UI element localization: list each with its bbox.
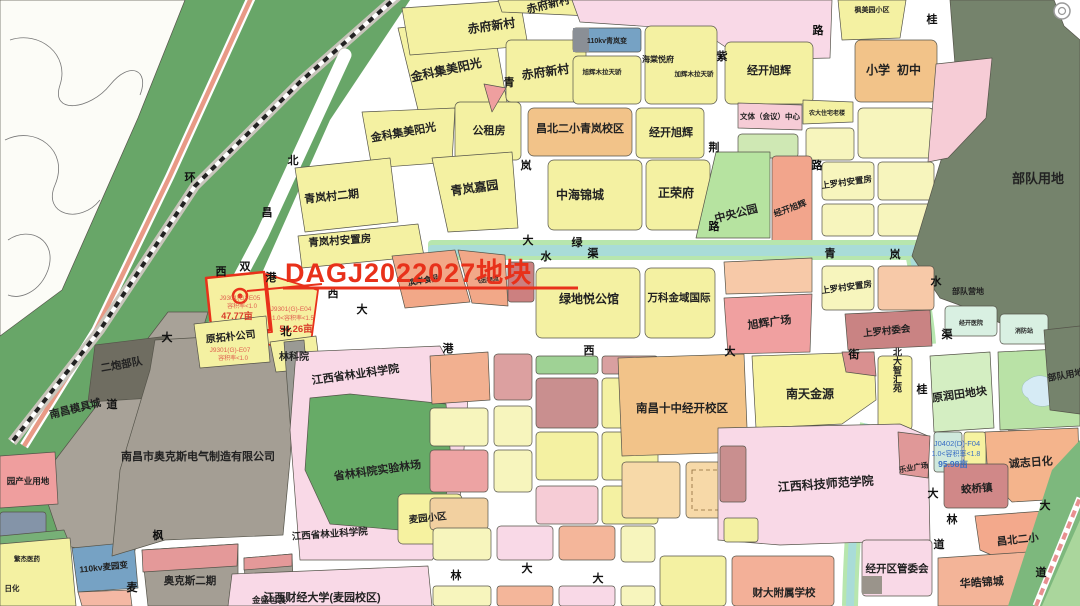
road-char: 道 xyxy=(107,397,118,411)
road-char: 道 xyxy=(934,537,945,551)
road-char: 路 xyxy=(812,158,824,172)
waterway-char: 水 xyxy=(541,249,553,263)
parcel-small xyxy=(536,378,598,428)
road-char: 昌 xyxy=(262,206,273,219)
road-char: 路 xyxy=(709,219,721,233)
parcel-small xyxy=(430,352,490,404)
waterway-char: 渠 xyxy=(942,327,954,341)
area-label: 园产业用地 xyxy=(7,476,50,486)
road-char: 大 xyxy=(1040,498,1051,512)
zoning-map: 赤府新村 赤府新村 金科集美阳光 金科集美阳光 公租房 赤府新村 110kv青岚… xyxy=(0,0,1080,606)
substation-label: 110kv青岚变 xyxy=(587,36,627,45)
road-char: 桂 xyxy=(926,12,938,26)
road-char: 大 xyxy=(522,561,533,575)
area-label: 经开区管委会 xyxy=(866,562,929,575)
roundabout xyxy=(1054,3,1070,19)
parcel-fengmeiyuan xyxy=(838,0,906,40)
parcel-shangluo-2 xyxy=(878,162,934,200)
parcel-small xyxy=(536,356,598,374)
road-char: 大 xyxy=(593,571,604,585)
area-label: 经开旭辉 xyxy=(649,125,693,139)
road-char: 街 xyxy=(848,347,860,361)
parcel-small xyxy=(621,526,655,562)
parcel-yellow xyxy=(806,128,854,160)
area-label: 旭辉木拉天骄 xyxy=(582,67,623,76)
road-char: 荆 xyxy=(709,140,720,154)
parcel-rose-strip xyxy=(720,446,746,502)
area-label: 部队用地 xyxy=(1012,171,1064,186)
parcel-salmon-sw xyxy=(78,590,132,606)
area-label: 繁杰医药 xyxy=(14,554,41,563)
parcel-small xyxy=(622,462,680,518)
parcel-area-value: 95.98亩 xyxy=(938,459,968,469)
road-char: 枫 xyxy=(153,528,164,542)
parcel-small xyxy=(559,586,615,606)
road-char: 岚 xyxy=(521,158,532,172)
parcel-small xyxy=(430,450,488,492)
road-char: 大 xyxy=(523,233,534,247)
parcel-small xyxy=(433,586,491,606)
road-char: 大 xyxy=(928,486,939,500)
road-char: 林 xyxy=(451,568,462,582)
area-label: 蛟桥镇 xyxy=(961,481,994,496)
road-char: 桂 xyxy=(916,382,928,396)
road-char: 路 xyxy=(813,23,825,37)
area-label: 林科院 xyxy=(279,350,309,363)
road-char: 北 xyxy=(281,324,292,338)
area-label: 海棠悦府 xyxy=(642,54,674,64)
parcel-small xyxy=(430,408,488,446)
parcel-small xyxy=(559,526,615,560)
road-char: 环 xyxy=(185,171,196,184)
area-label: 小学 xyxy=(866,62,890,77)
road-char: 大 xyxy=(357,302,368,316)
parcel-small xyxy=(536,432,598,480)
parcel-small xyxy=(433,528,491,560)
parcel-code: J9301(G)-E07 xyxy=(210,347,251,354)
parcel-code: 1.0<容积率<1.8 xyxy=(932,449,981,458)
parcel-small xyxy=(724,518,758,542)
parcel-area-value: 47.77亩 xyxy=(221,310,253,321)
area-label: 消防站 xyxy=(1015,327,1033,335)
road-char: 道 xyxy=(1036,565,1047,579)
area-label: 部队营地 xyxy=(952,286,984,296)
parcel-small xyxy=(497,586,553,606)
map-canvas: 赤府新村 赤府新村 金科集美阳光 金科集美阳光 公租房 赤府新村 110kv青岚… xyxy=(0,0,1080,606)
area-label: 奥克斯二期 xyxy=(164,574,217,587)
area-label: 文体（会议）中心 xyxy=(740,111,800,121)
parcel-code: 1.0<容积率<1.5 xyxy=(272,314,314,322)
road-char: 紫 xyxy=(717,49,728,63)
gray-notch xyxy=(862,576,882,594)
parcel-small xyxy=(494,406,532,446)
area-label: 南天金源 xyxy=(786,386,834,401)
area-label: 南昌十中经开校区 xyxy=(636,401,728,415)
parcel-small xyxy=(621,586,655,606)
parcel-small xyxy=(494,450,532,492)
road-char: 大 xyxy=(725,344,736,358)
road-char: 西 xyxy=(584,344,595,357)
parcel-sw-yellow xyxy=(0,538,76,606)
waterway-char: 青 xyxy=(825,246,836,260)
parcel-yellow xyxy=(858,108,934,158)
parcel-code: J9301(G)-E05 xyxy=(220,295,261,302)
area-label: 公租房 xyxy=(473,123,506,137)
waterway-char: 水 xyxy=(931,274,943,288)
area-label: 经开旭辉 xyxy=(747,63,791,77)
area-label: 日化 xyxy=(5,583,20,593)
parcel-code: J0402(D)-F04 xyxy=(934,439,980,448)
parcel-small xyxy=(494,354,532,400)
area-label: 加辉木拉天骄 xyxy=(674,69,715,78)
road-char: 北 xyxy=(288,153,299,167)
area-label: 金盛包装 xyxy=(251,595,287,605)
parcel-xuhui-1 xyxy=(573,56,641,104)
area-label: 初中 xyxy=(897,62,921,77)
parcel-small xyxy=(660,556,726,606)
parcel-peach xyxy=(724,258,812,294)
parcel-haitang xyxy=(645,26,717,104)
road-char: 西 xyxy=(216,265,227,278)
parcel-small xyxy=(536,486,598,524)
area-label: 经开医院 xyxy=(959,319,983,327)
road-char: 麦 xyxy=(127,580,139,594)
waterway-char: 渠 xyxy=(588,246,600,260)
parcel-code: J9301(G)-E04 xyxy=(271,306,312,313)
area-label: 农大住宅老楼 xyxy=(808,109,845,117)
parcel-code: 容积率<1.0 xyxy=(218,354,249,362)
parcel-peach-2 xyxy=(878,266,934,310)
road-char: 林 xyxy=(947,512,958,526)
area-label: 万科金域国际 xyxy=(647,291,711,304)
road-char: 双 xyxy=(240,260,251,273)
highlight-parcel-label[interactable]: DAGJ2022027地块 xyxy=(285,258,532,288)
road-char: 港 xyxy=(443,341,455,355)
waterway-char: 绿 xyxy=(572,235,584,249)
waterway-char: 岚 xyxy=(890,247,901,261)
area-label: 财大附属学校 xyxy=(752,586,816,599)
road-char: 大 xyxy=(162,330,173,344)
parcel-shangluo-3 xyxy=(822,204,874,236)
water-channel xyxy=(428,245,940,256)
area-label: 中海锦城 xyxy=(556,187,604,202)
area-label: 南昌市奥克斯电气制造有限公司 xyxy=(121,449,275,463)
area-label: 昌北二小青岚校区 xyxy=(536,121,624,135)
parcel-code: 容积率<1.0 xyxy=(227,302,258,310)
area-label: 绿地悦公馆 xyxy=(559,291,619,306)
area-label: 北大智汇苑 xyxy=(892,346,902,393)
road-char: 青 xyxy=(504,75,515,89)
road-char: 港 xyxy=(266,270,278,284)
area-label: 枫美园小区 xyxy=(855,5,890,14)
area-label: 正荣府 xyxy=(658,185,694,200)
parcel-small xyxy=(497,526,553,560)
